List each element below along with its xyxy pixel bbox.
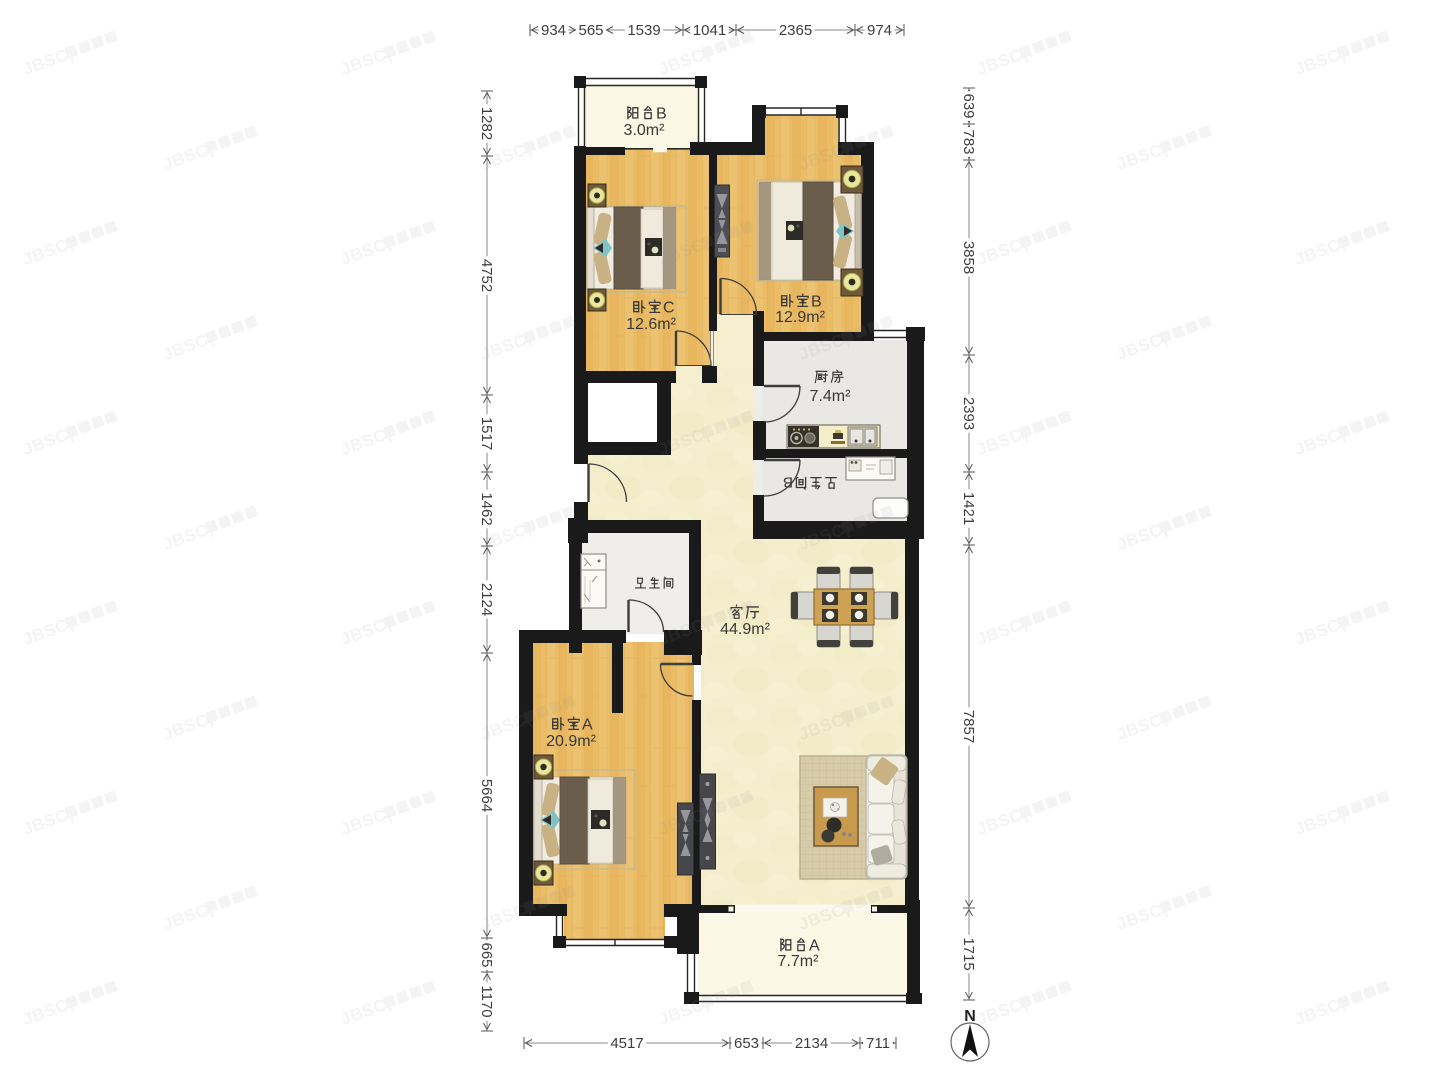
svg-text:1041: 1041 <box>693 22 726 39</box>
svg-text:934: 934 <box>541 22 566 39</box>
svg-text:4517: 4517 <box>610 1035 643 1052</box>
svg-text:12.6m²: 12.6m² <box>626 316 676 333</box>
svg-text:1517: 1517 <box>478 417 495 450</box>
svg-text:1170: 1170 <box>478 985 495 1017</box>
svg-text:1421: 1421 <box>960 492 977 525</box>
svg-text:7.4m²: 7.4m² <box>810 388 852 405</box>
svg-text:665: 665 <box>478 942 495 967</box>
svg-text:565: 565 <box>578 22 603 39</box>
svg-text:4752: 4752 <box>478 259 495 292</box>
svg-text:974: 974 <box>867 22 892 39</box>
svg-text:1282: 1282 <box>478 107 495 140</box>
svg-text:12.9m²: 12.9m² <box>775 309 825 326</box>
svg-text:C: C <box>663 300 675 317</box>
svg-text:2134: 2134 <box>795 1035 828 1052</box>
svg-text:A: A <box>809 938 820 955</box>
svg-text:639: 639 <box>960 93 977 118</box>
svg-text:B: B <box>656 106 667 123</box>
svg-text:A: A <box>582 717 593 734</box>
svg-text:7857: 7857 <box>960 710 977 743</box>
svg-text:3.0m²: 3.0m² <box>624 122 666 139</box>
svg-text:5664: 5664 <box>478 779 495 812</box>
svg-text:44.9m²: 44.9m² <box>720 621 770 638</box>
svg-text:2365: 2365 <box>779 22 812 39</box>
svg-text:7.7m²: 7.7m² <box>778 953 820 970</box>
svg-text:1715: 1715 <box>960 937 977 970</box>
svg-text:653: 653 <box>734 1035 759 1052</box>
svg-text:3858: 3858 <box>960 241 977 274</box>
svg-text:711: 711 <box>866 1035 890 1052</box>
svg-text:20.9m²: 20.9m² <box>546 733 596 750</box>
svg-text:2124: 2124 <box>478 583 495 616</box>
svg-text:B: B <box>811 294 822 311</box>
svg-text:2393: 2393 <box>960 397 977 430</box>
svg-text:B: B <box>783 474 793 491</box>
svg-text:1539: 1539 <box>627 22 660 39</box>
svg-text:1462: 1462 <box>478 492 495 525</box>
svg-text:783: 783 <box>960 129 977 154</box>
